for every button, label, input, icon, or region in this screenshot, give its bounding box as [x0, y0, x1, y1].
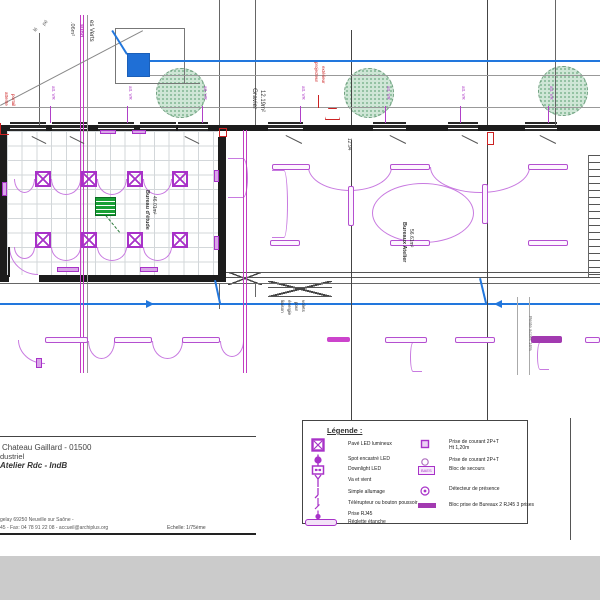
- wiring-arc: [272, 170, 288, 238]
- plan-line: [202, 106, 203, 123]
- legend-row: Détecteur de présence: [418, 484, 528, 496]
- blue-square-marker: [127, 53, 150, 77]
- rotated-label: énergie: [286, 300, 291, 315]
- ramp-hatch: [588, 155, 600, 277]
- plan-line: [83, 15, 84, 373]
- pave-led-fixture: [127, 171, 143, 187]
- rotated-label: 12.19m²: [259, 90, 265, 112]
- plan-line: [140, 75, 600, 76]
- rotated-label: 12.94: [346, 138, 351, 151]
- rotated-label: pour: [293, 302, 298, 311]
- legend-row: BAESBloc de secours: [418, 464, 528, 476]
- plan-line: [142, 60, 600, 62]
- legend-label: Détecteur de présence: [449, 487, 500, 493]
- plan-line: [9, 275, 39, 282]
- plan-line: [0, 533, 256, 535]
- rotated-label: attente: [3, 92, 8, 106]
- floor-plan-page: lépé.06m²subdes VertsGravier12.19m²att. …: [0, 0, 600, 600]
- plan-line: [517, 297, 518, 375]
- wall: [218, 137, 226, 282]
- window: [268, 122, 303, 131]
- rotated-label: Bureaux Atelier: [400, 222, 406, 262]
- pave-led-fixture: [81, 232, 97, 248]
- legend-label: Downlight LED: [348, 467, 381, 473]
- wiring-arc: [372, 183, 474, 243]
- plan-line: [588, 155, 589, 277]
- reglette-fixture: [528, 240, 568, 246]
- outlet-device: [2, 182, 7, 196]
- rotated-label: volets: [300, 300, 305, 312]
- reglette-fixture: [272, 164, 310, 170]
- legend-label: Pavé LED lumineux: [348, 442, 392, 448]
- legend-label-2: Ht 1,20m: [449, 446, 469, 452]
- rotated-label: projecteur: [313, 62, 318, 82]
- wall: [0, 131, 7, 282]
- outlet-device: [140, 267, 158, 272]
- pave-led-fixture: [127, 232, 143, 248]
- plan-line: [385, 106, 386, 123]
- plan-line: [243, 130, 244, 373]
- project-location: Chateau Gaillard - 01500: [2, 443, 91, 452]
- rotated-label: att. VR: [460, 86, 465, 100]
- plan-line: [8, 247, 10, 277]
- plan-line: [548, 106, 549, 123]
- rotated-label: att. VR: [127, 86, 132, 100]
- flow-arrow: [146, 300, 154, 308]
- rotated-label: att. VR: [385, 86, 390, 100]
- rotated-label: 56.61m²: [408, 229, 413, 247]
- outlet-device: [214, 170, 219, 182]
- legend-label: Va et vient: [348, 478, 371, 484]
- rotated-label: portail: [10, 94, 15, 106]
- plan-line: [246, 130, 247, 373]
- pave-led-fixture: [35, 232, 51, 248]
- red-symbol: [325, 108, 340, 120]
- outlet-device: [36, 358, 42, 368]
- rotated-label: liaison: [279, 300, 284, 313]
- reglette-fixture: [182, 337, 220, 343]
- bloc-prise-icon: [418, 503, 436, 508]
- legend-row: Va et vient: [311, 474, 421, 486]
- legend-row: Pavé LED lumineux: [311, 438, 421, 450]
- legend-row: Prise de courant 2P+THt 1,20m: [418, 437, 528, 449]
- plan-line: [351, 30, 352, 125]
- window: [448, 122, 478, 131]
- reglette-fixture: [270, 240, 300, 246]
- drawing-title: Atelier Rdc - IndB: [0, 461, 67, 470]
- plan-line: [300, 106, 301, 123]
- tree: [538, 66, 588, 116]
- plan-line: [0, 556, 600, 600]
- pave-led-fixture: [81, 171, 97, 187]
- plan-line: [0, 283, 600, 284]
- baes-icon: BAES: [418, 466, 435, 475]
- legend-label: Réglette étanche: [348, 520, 386, 526]
- plan-line: [50, 106, 51, 123]
- legend-row: Réglette étanche: [311, 516, 421, 528]
- plan-line: [255, 283, 256, 297]
- reglette-fixture: [327, 337, 350, 342]
- plan-diagonal: [286, 135, 302, 144]
- scale-label: Echelle: 1/75ème: [167, 525, 206, 531]
- prise-ht-icon: [418, 437, 432, 456]
- legend-label: Bloc de secours: [449, 467, 485, 473]
- plan-line: [268, 296, 332, 297]
- reglette-fixture: [45, 337, 88, 343]
- rotated-label: 46.01m²: [151, 196, 156, 214]
- reglette-fixture: [114, 337, 152, 343]
- reglette-fixture: [455, 337, 495, 343]
- wiring-arc: [152, 341, 183, 359]
- window: [525, 122, 557, 131]
- flow-arrow: [494, 300, 502, 308]
- plan-line: [351, 140, 352, 420]
- outlet-device: [100, 130, 116, 134]
- legend-row: Bloc prise de Bureaux 2 RJ45 3 prises: [418, 500, 528, 512]
- red-symbol: [219, 128, 227, 137]
- pave-led-fixture: [172, 171, 188, 187]
- plan-line: [0, 436, 256, 437]
- rotated-label: Bureau d'étude: [143, 190, 149, 230]
- rotated-label: pé: [42, 20, 49, 27]
- wiring-arc: [88, 341, 115, 359]
- reglette-fixture: [482, 184, 488, 224]
- plan-line: [570, 418, 571, 540]
- address-line: gelay 69250 Neuville sur Saône -: [0, 517, 74, 523]
- rotated-label: att. VR: [50, 86, 55, 100]
- legend-label: Simple allumage: [348, 490, 385, 496]
- plan-line: [460, 106, 461, 123]
- plan-line: [39, 33, 40, 125]
- reglette-icon: [305, 519, 337, 526]
- plan-diagonal: [462, 135, 478, 144]
- plan-diagonal: [480, 278, 487, 303]
- plan-line: [87, 15, 88, 373]
- wiring-arc: [220, 341, 244, 357]
- plan-line: [318, 95, 319, 108]
- legend: Légende : Pavé LED lumineuxSpot encastré…: [302, 420, 528, 524]
- rotated-label: att. VR: [300, 86, 305, 100]
- rotated-label: Gravier: [250, 88, 257, 109]
- rotated-label: .06m²: [68, 22, 74, 36]
- legend-label: Spot encastré LED: [348, 457, 390, 463]
- reglette-fixture: [585, 337, 600, 343]
- project-type: dustriel: [0, 452, 24, 461]
- electrical-panel: [95, 197, 116, 216]
- legend-title: Légende :: [327, 426, 362, 435]
- window: [10, 122, 46, 131]
- wiring-arc: [537, 342, 549, 370]
- plan-line: [115, 28, 185, 29]
- rotated-label: es Verts: [88, 20, 94, 42]
- outlet-device: [132, 130, 146, 134]
- rotated-label: extérieur: [320, 66, 325, 84]
- red-symbol: [0, 123, 9, 135]
- rotated-label: att. VR: [548, 86, 553, 100]
- wiring-arc: [410, 342, 422, 372]
- legend-label: Bloc prise de Bureaux 2 RJ45 3 prises: [449, 503, 534, 509]
- contact-line: 45 - Fax: 04 78 91 22 08 - accueil@archi…: [0, 525, 108, 531]
- outlet-device: [214, 236, 219, 250]
- rotated-label: subd: [77, 24, 83, 37]
- legend-label: Prise de courant 2P+T: [449, 458, 499, 464]
- reglette-fixture: [390, 164, 430, 170]
- plan-diagonal: [540, 135, 556, 144]
- plan-line: [226, 277, 600, 278]
- plan-diagonal: [390, 135, 406, 144]
- wiring-arc: [228, 158, 248, 198]
- reglette-fixture: [385, 337, 427, 343]
- pave-led-fixture: [172, 232, 188, 248]
- outlet-device: [57, 267, 79, 272]
- plan-line: [127, 106, 128, 123]
- reglette-fixture: [531, 336, 562, 343]
- legend-label: Télérupteur ou bouton poussoir: [348, 501, 418, 507]
- plan-line: [226, 272, 600, 273]
- window: [178, 122, 208, 131]
- plan-line: [487, 140, 488, 420]
- plan-diagonal: [0, 30, 143, 106]
- window: [373, 122, 406, 131]
- pave-led-fixture: [35, 171, 51, 187]
- rotated-label: Pente accès 16%: [527, 316, 532, 351]
- reglette-fixture: [528, 164, 568, 170]
- rotated-label: att. VR: [202, 86, 207, 100]
- plan-line: [115, 83, 200, 84]
- plan-line: [268, 287, 332, 288]
- plan-line: [80, 15, 81, 373]
- red-symbol: [487, 132, 494, 145]
- reglette-fixture: [348, 186, 354, 226]
